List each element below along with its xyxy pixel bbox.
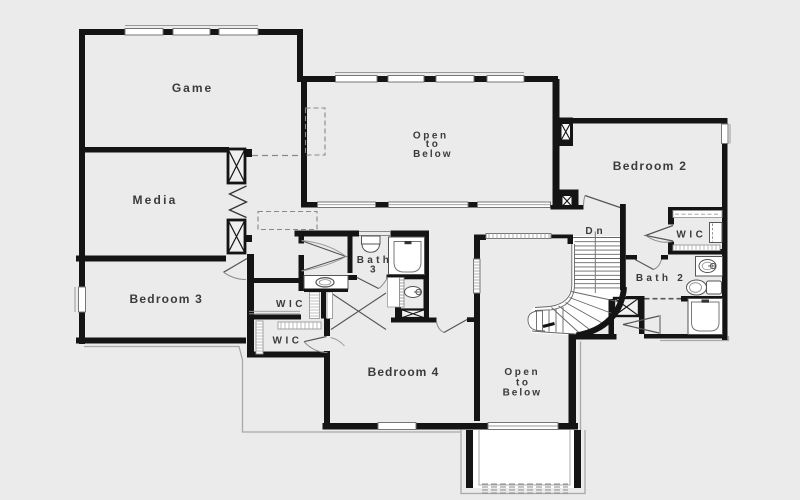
svg-text:WIC: WIC <box>273 336 303 347</box>
svg-text:Media: Media <box>132 193 177 207</box>
svg-text:Bath 2: Bath 2 <box>636 273 686 284</box>
svg-text:Open: Open <box>504 367 540 378</box>
svg-text:Dn: Dn <box>585 226 606 237</box>
svg-text:Below: Below <box>413 149 452 160</box>
svg-text:3: 3 <box>370 265 376 276</box>
svg-text:Bedroom 2: Bedroom 2 <box>613 159 687 173</box>
svg-text:WIC: WIC <box>676 230 706 241</box>
svg-text:Game: Game <box>172 81 213 95</box>
svg-text:Below: Below <box>503 388 542 399</box>
svg-text:Bedroom 4: Bedroom 4 <box>368 365 440 379</box>
svg-text:WIC: WIC <box>276 299 306 310</box>
svg-text:Bedroom 3: Bedroom 3 <box>130 292 203 306</box>
